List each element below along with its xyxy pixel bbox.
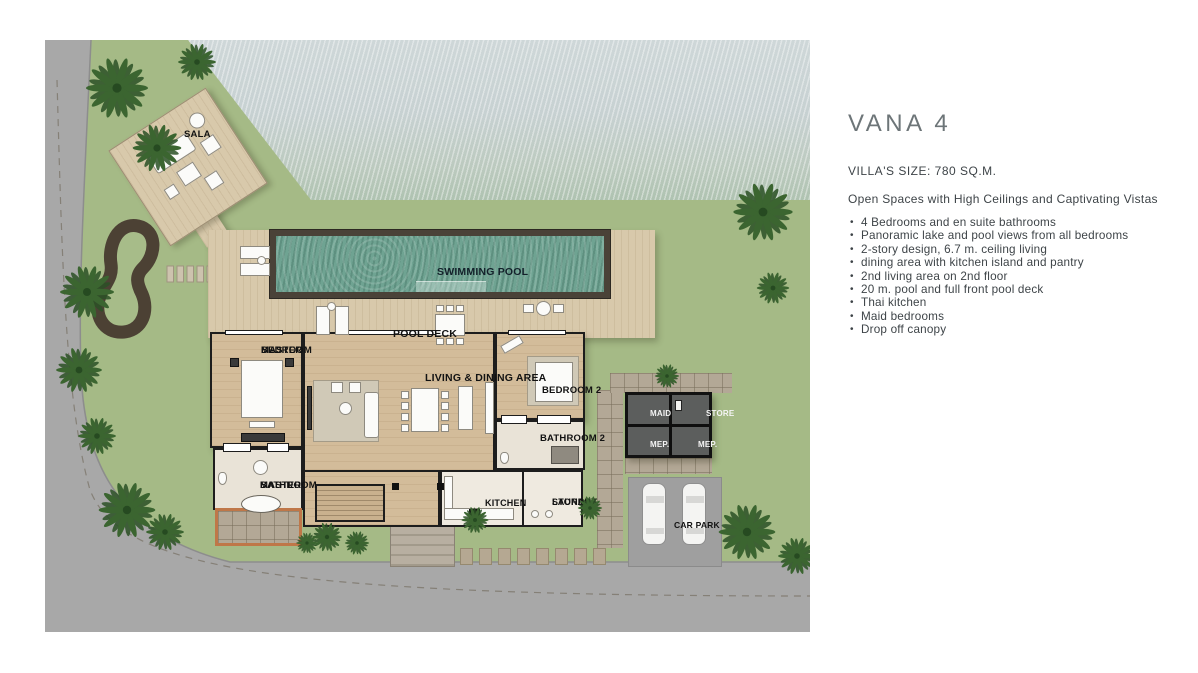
store-fixture: [675, 400, 682, 411]
dining-chair: [401, 402, 409, 410]
dining-table: [411, 388, 439, 432]
pool-steps: [416, 281, 486, 292]
nightstand: [285, 358, 294, 367]
deck-chair: [523, 304, 534, 313]
shower: [551, 446, 579, 464]
dresser: [241, 433, 285, 442]
lounger: [240, 263, 270, 276]
stepping-paver: [536, 548, 549, 565]
outdoor-chair: [456, 305, 464, 312]
sofa: [364, 392, 379, 438]
stepping-paver: [479, 548, 492, 565]
armchair: [331, 382, 343, 393]
villa-title: VANA 4: [848, 110, 1183, 138]
villa-size: VILLA'S SIZE: 780 SQ.M.: [848, 164, 1183, 178]
vanity-counter: [223, 443, 251, 452]
service-wall: [669, 427, 672, 456]
feature-item: Thai kitchen: [848, 296, 1183, 309]
stepping-paver: [574, 548, 587, 565]
window: [225, 330, 283, 335]
site-plan: SALA SWIMMING POOL POOL DECK MASTER BEDR…: [45, 40, 810, 632]
side-table: [327, 302, 336, 311]
deck-round-table: [536, 301, 551, 316]
sink: [253, 460, 268, 475]
bath-garden-court: [215, 508, 302, 546]
entry-column: [392, 483, 399, 490]
dining-chair: [441, 402, 449, 410]
window: [508, 330, 566, 335]
service-porch: [625, 458, 712, 474]
dining-chair: [401, 413, 409, 421]
lounger: [316, 306, 330, 335]
entry-column: [437, 483, 444, 490]
vanity-counter: [267, 443, 289, 452]
feature-item: 20 m. pool and full front pool deck: [848, 283, 1183, 296]
kitchen-island: [458, 386, 473, 430]
stove: [469, 509, 480, 519]
garden-pond-ring: [98, 226, 153, 333]
outdoor-chair: [436, 305, 444, 312]
deck-chair: [553, 304, 564, 313]
vanity-counter: [537, 415, 571, 424]
toilet: [500, 452, 509, 464]
lounger: [335, 306, 349, 335]
armchair: [349, 382, 361, 393]
feature-item: 2nd living area on 2nd floor: [848, 270, 1183, 283]
dining-chair: [401, 424, 409, 432]
stepping-paver: [498, 548, 511, 565]
dining-chair: [441, 424, 449, 432]
feature-item: Panoramic lake and pool views from all b…: [848, 229, 1183, 242]
stepping-paver: [517, 548, 530, 565]
villa-tagline: Open Spaces with High Ceilings and Capti…: [848, 192, 1183, 206]
stepping-paver: [460, 548, 473, 565]
tv-console: [307, 386, 312, 430]
stepping-paver: [593, 548, 606, 565]
dining-chair: [401, 391, 409, 399]
feature-item: Maid bedrooms: [848, 310, 1183, 323]
nightstand: [230, 358, 239, 367]
lounger: [240, 246, 270, 259]
washer: [545, 510, 553, 518]
washer: [531, 510, 539, 518]
sala-stool: [164, 183, 181, 200]
toilet: [218, 472, 227, 485]
stepping-paver: [555, 548, 568, 565]
feature-item: Drop off canopy: [848, 323, 1183, 336]
feature-list: 4 Bedrooms and en suite bathroomsPanoram…: [848, 216, 1183, 337]
bed-bench: [249, 421, 275, 428]
kitchen-counter: [485, 382, 494, 434]
bathtub: [241, 495, 281, 513]
service-apron: [610, 373, 732, 393]
outdoor-chair: [456, 338, 464, 345]
brochure-page: SALA SWIMMING POOL POOL DECK MASTER BEDR…: [0, 0, 1198, 673]
service-path: [597, 390, 623, 548]
vanity-counter: [501, 415, 527, 424]
side-table: [257, 256, 266, 265]
swimming-pool: [270, 230, 610, 298]
feature-item: 2-story design, 6.7 m. ceiling living: [848, 243, 1183, 256]
info-panel: VANA 4 VILLA'S SIZE: 780 SQ.M. Open Spac…: [848, 110, 1183, 337]
sala-chair-2: [204, 170, 225, 191]
master-bed: [241, 360, 283, 418]
dining-chair: [441, 413, 449, 421]
outdoor-chair: [446, 305, 454, 312]
car: [682, 483, 706, 545]
coffee-table: [339, 402, 352, 415]
feature-item: dining area with kitchen island and pant…: [848, 256, 1183, 269]
dining-chair: [441, 391, 449, 399]
feature-item: 4 Bedrooms and en suite bathrooms: [848, 216, 1183, 229]
stepping-stones: [167, 266, 214, 282]
sala-table: [176, 162, 202, 187]
staircase: [315, 484, 385, 522]
car: [642, 483, 666, 545]
